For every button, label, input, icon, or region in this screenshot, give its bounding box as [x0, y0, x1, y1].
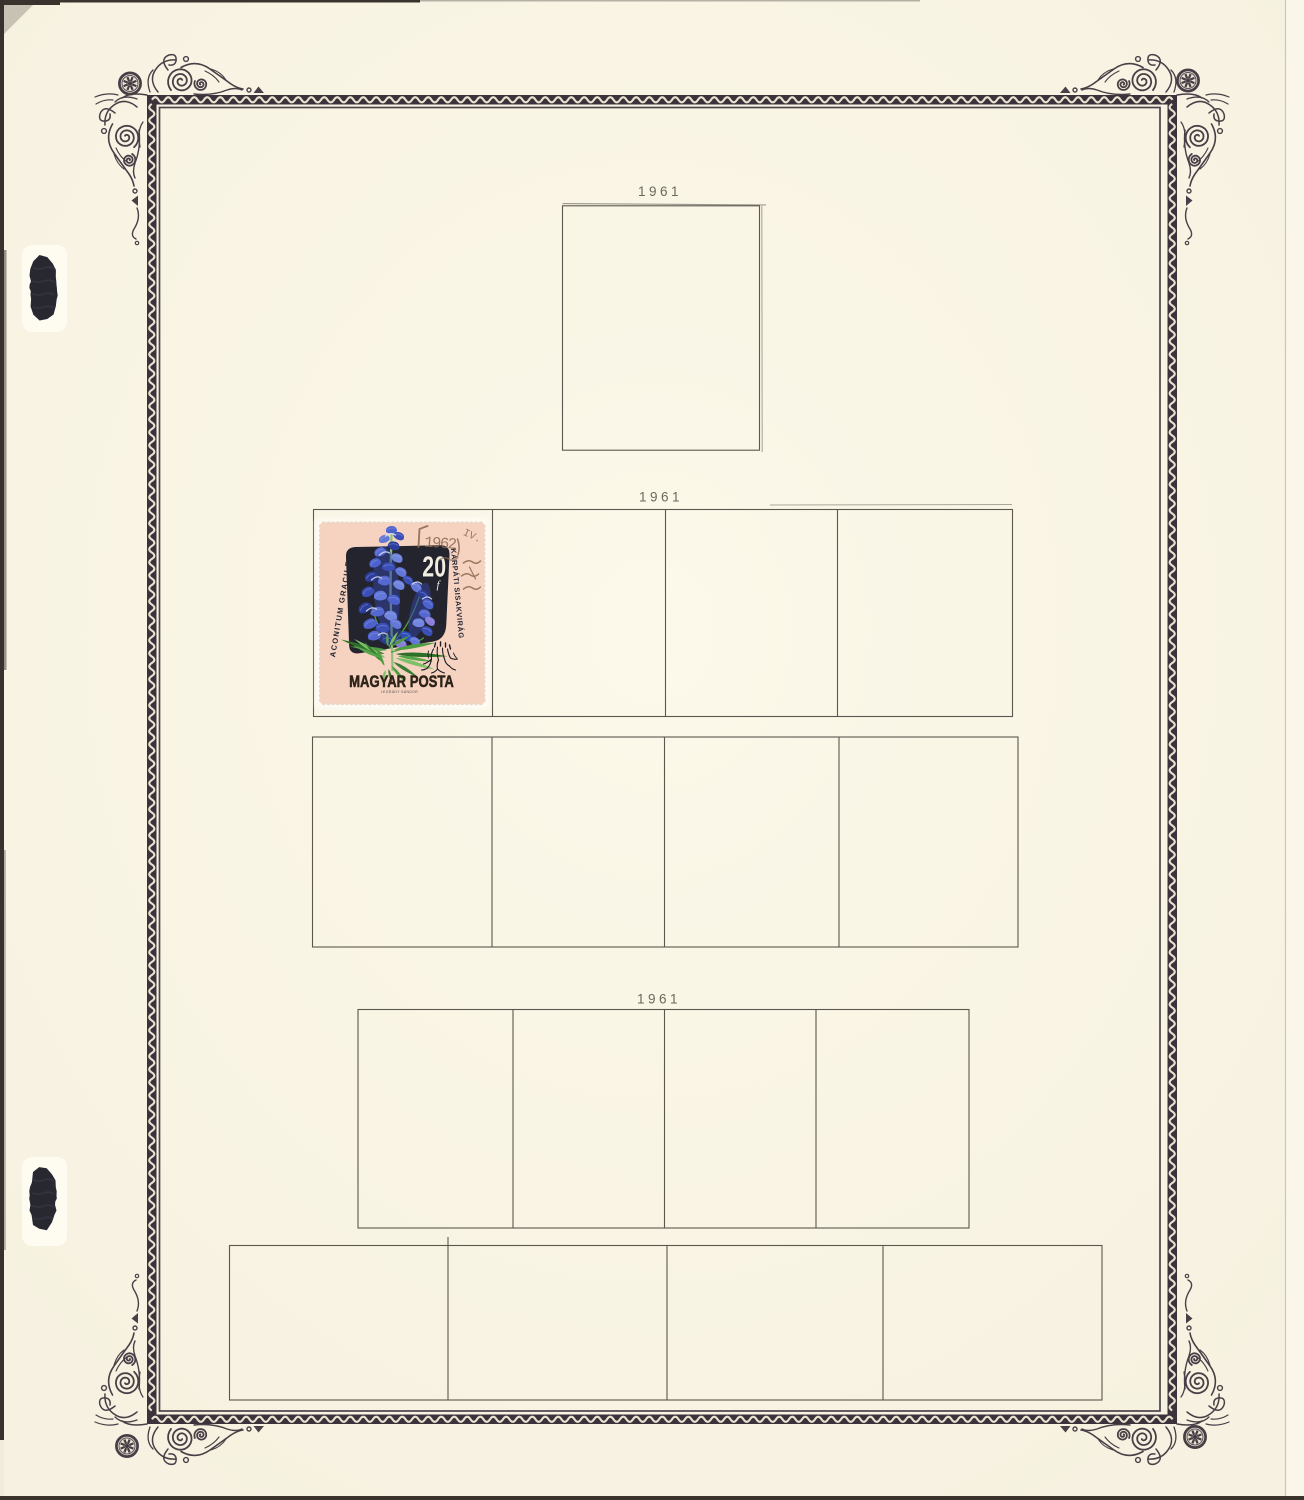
- svg-text:1961: 1961: [637, 992, 681, 1007]
- svg-text:1961: 1961: [638, 184, 682, 199]
- svg-text:LEGRÁDY SÁNDOR: LEGRÁDY SÁNDOR: [381, 690, 418, 694]
- svg-text:1961: 1961: [639, 490, 683, 505]
- svg-text:1962: 1962: [424, 534, 458, 554]
- svg-text:20: 20: [422, 552, 446, 584]
- svg-text:MAGYAR POSTA: MAGYAR POSTA: [349, 673, 454, 692]
